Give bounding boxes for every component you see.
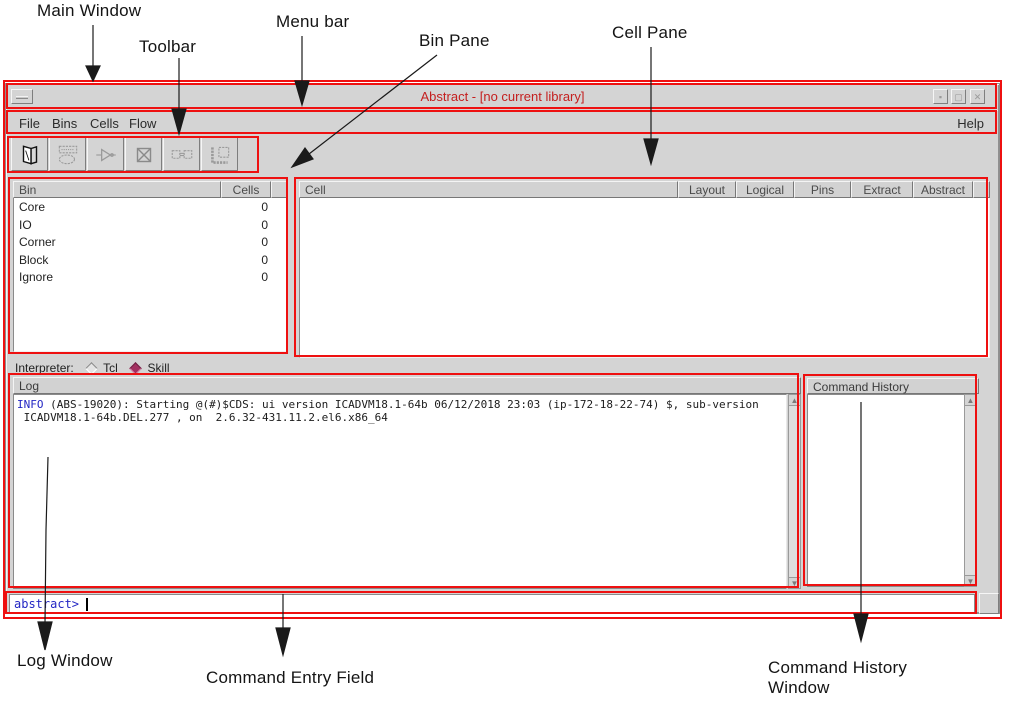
menu-flow[interactable]: Flow — [129, 116, 156, 131]
close-button[interactable]: ✕ — [970, 89, 985, 104]
menu-bins[interactable]: Bins — [52, 116, 77, 131]
bin-header-stub — [271, 181, 287, 198]
bin-list: Core 0 IO 0 Corner 0 Block 0 Ignore 0 — [13, 198, 287, 352]
bin-row-block[interactable]: Block 0 — [14, 251, 286, 269]
title-bar[interactable]: Abstract - [no current library] ▪ ▢ ✕ — [7, 85, 998, 109]
annotation-bin-pane: Bin Pane — [419, 31, 490, 51]
maximize-button[interactable]: ▢ — [951, 89, 966, 104]
scroll-up-icon[interactable]: ▲ — [965, 395, 976, 406]
skill-radio-label[interactable]: Skill — [148, 361, 170, 375]
cell-header-stub — [973, 181, 990, 198]
menu-file[interactable]: File — [19, 116, 40, 131]
command-history-pane: Command History ▲ ▼ — [807, 378, 979, 587]
toolbar-logical-button[interactable] — [87, 137, 124, 171]
log-info-tag: INFO — [17, 398, 44, 411]
layout-column-header[interactable]: Layout — [678, 181, 736, 198]
bin-name: Corner — [19, 235, 56, 249]
minimize-button[interactable]: ▪ — [933, 89, 948, 104]
interpreter-label: Interpreter: — [15, 361, 74, 375]
command-history-header: Command History — [807, 378, 979, 394]
log-window[interactable]: INFO (ABS-19020): Starting @(#)$CDS: ui … — [13, 394, 787, 589]
annotation-command-entry-field: Command Entry Field — [206, 668, 374, 688]
window-title: Abstract - [no current library] — [7, 89, 998, 104]
cell-column-header[interactable]: Cell — [299, 181, 678, 198]
command-entry-field[interactable]: abstract> — [9, 594, 975, 614]
bin-row-ignore[interactable]: Ignore 0 — [14, 268, 286, 286]
command-history-window[interactable] — [807, 394, 965, 587]
maximize-icon: ▢ — [954, 92, 963, 102]
bin-row-core[interactable]: Core 0 — [14, 198, 286, 216]
pins-column-header[interactable]: Pins — [794, 181, 851, 198]
annotation-cell-pane: Cell Pane — [612, 23, 688, 43]
toolbar-abstract-button[interactable] — [201, 137, 238, 171]
bin-count: 0 — [250, 218, 268, 232]
scroll-down-icon[interactable]: ▼ — [789, 577, 800, 588]
bin-count: 0 — [250, 200, 268, 214]
bin-row-corner[interactable]: Corner 0 — [14, 233, 286, 251]
close-icon: ✕ — [974, 92, 982, 102]
toolbar-extract-button[interactable] — [163, 137, 200, 171]
bin-name: IO — [19, 218, 32, 232]
bin-header: Bin Cells — [13, 181, 287, 198]
menu-help[interactable]: Help — [957, 116, 984, 131]
tcl-radio-label[interactable]: Tcl — [103, 361, 118, 375]
cell-pane: Cell Layout Logical Pins Extract Abstrac… — [299, 181, 990, 358]
extract-icon — [169, 142, 195, 168]
log-pane: Log INFO (ABS-19020): Starting @(#)$CDS:… — [13, 377, 801, 589]
toolbar-library-button[interactable] — [11, 137, 48, 171]
bin-pane: Bin Cells Core 0 IO 0 Corner 0 Block 0 I… — [13, 181, 287, 352]
cells-column-header[interactable]: Cells — [221, 181, 271, 198]
bin-column-header[interactable]: Bin — [13, 181, 221, 198]
cell-header: Cell Layout Logical Pins Extract Abstrac… — [299, 181, 990, 198]
log-scrollbar[interactable]: ▲ ▼ — [788, 394, 801, 589]
layout-icon — [55, 142, 81, 168]
annotation-toolbar: Toolbar — [139, 37, 196, 57]
arrow-main-window — [86, 25, 100, 81]
annotation-main-window: Main Window — [37, 1, 141, 21]
abstract-column-header[interactable]: Abstract — [913, 181, 973, 198]
annotation-command-history-window: Command History Window — [768, 658, 907, 698]
menu-bar: File Bins Cells Flow Help — [7, 110, 998, 134]
bin-name: Ignore — [19, 270, 53, 284]
annotation-command-history-line2: Window — [768, 678, 907, 698]
toolbar-layout-button[interactable] — [49, 137, 86, 171]
annotation-log-window: Log Window — [17, 651, 113, 671]
bin-count: 0 — [250, 253, 268, 267]
cell-list[interactable] — [299, 198, 990, 358]
logical-icon — [93, 142, 119, 168]
abstract-icon — [207, 142, 233, 168]
annotation-command-history-line1: Command History — [768, 658, 907, 678]
bin-count: 0 — [250, 270, 268, 284]
bin-name: Block — [19, 253, 48, 267]
skill-radio[interactable] — [129, 362, 142, 375]
extract-column-header[interactable]: Extract — [851, 181, 913, 198]
menu-cells[interactable]: Cells — [90, 116, 119, 131]
command-prompt: abstract> — [14, 597, 79, 611]
history-scrollbar[interactable]: ▲ ▼ — [964, 394, 977, 587]
bin-row-io[interactable]: IO 0 — [14, 216, 286, 234]
logical-column-header[interactable]: Logical — [736, 181, 794, 198]
bin-name: Core — [19, 200, 45, 214]
annotation-menu-bar: Menu bar — [276, 12, 349, 32]
resize-grip[interactable] — [979, 593, 999, 614]
toolbar-pins-button[interactable] — [125, 137, 162, 171]
interpreter-selector: Interpreter: Tcl Skill — [15, 361, 170, 377]
library-icon — [17, 142, 43, 168]
log-line2: ICADVM18.1-64b.DEL.277 , on 2.6.32-431.1… — [17, 411, 388, 424]
scroll-up-icon[interactable]: ▲ — [789, 395, 800, 406]
pins-icon — [131, 142, 157, 168]
scroll-down-icon[interactable]: ▼ — [965, 575, 976, 586]
log-header: Log — [13, 377, 801, 394]
tcl-radio[interactable] — [85, 362, 98, 375]
main-window: Abstract - [no current library] ▪ ▢ ✕ Fi… — [5, 83, 1000, 614]
bin-count: 0 — [250, 235, 268, 249]
log-line1: (ABS-19020): Starting @(#)$CDS: ui versi… — [44, 398, 759, 411]
minimize-icon: ▪ — [939, 92, 942, 102]
text-caret — [86, 598, 88, 611]
